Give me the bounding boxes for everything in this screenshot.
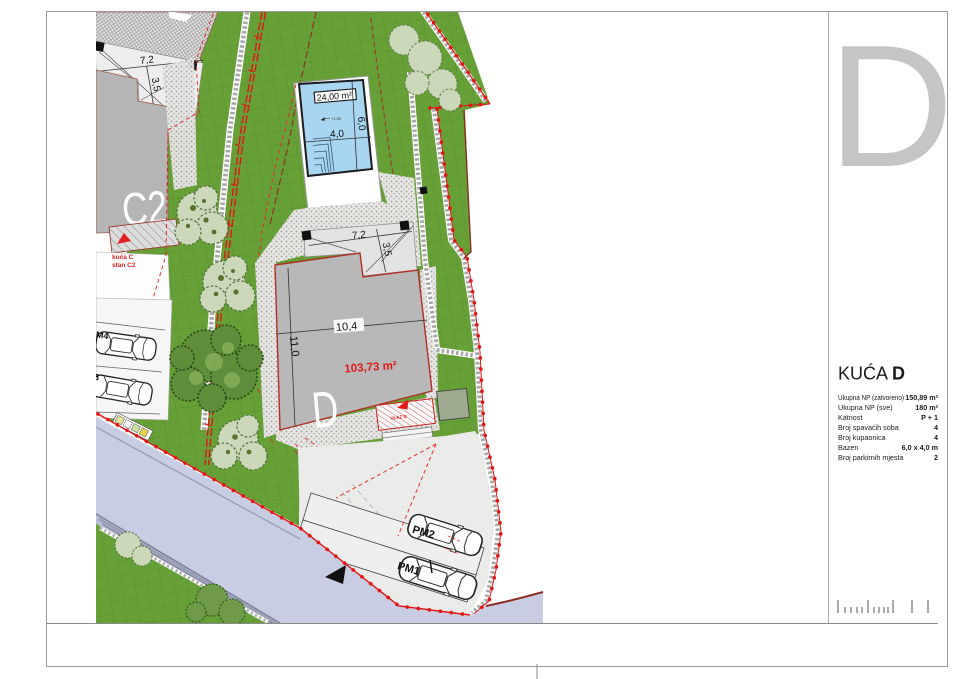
svg-text:11,0: 11,0 bbox=[287, 335, 301, 357]
svg-text:Broj spavaćih soba: Broj spavaćih soba bbox=[838, 423, 899, 432]
svg-text:D: D bbox=[310, 380, 341, 439]
svg-text:Ukupna NP (sve): Ukupna NP (sve) bbox=[838, 403, 893, 412]
svg-text:4,0: 4,0 bbox=[330, 129, 345, 141]
svg-text:7,2: 7,2 bbox=[352, 229, 367, 241]
svg-text:KUĆA D: KUĆA D bbox=[838, 363, 905, 384]
svg-text:D: D bbox=[828, 8, 954, 203]
svg-text:M4: M4 bbox=[95, 329, 109, 341]
svg-text:10,4: 10,4 bbox=[336, 320, 358, 334]
svg-text:6,0 x 4,0 m: 6,0 x 4,0 m bbox=[902, 443, 938, 452]
svg-text:7,2: 7,2 bbox=[140, 54, 155, 66]
svg-text:P + 1: P + 1 bbox=[921, 413, 938, 422]
svg-text:Katnost: Katnost bbox=[838, 413, 862, 422]
svg-text:Ukupna NP (zatvoreno): Ukupna NP (zatvoreno) bbox=[838, 393, 904, 402]
svg-text:Broj kupaonica: Broj kupaonica bbox=[838, 433, 886, 442]
svg-text:+1,50: +1,50 bbox=[331, 116, 342, 121]
svg-text:150,89 m²: 150,89 m² bbox=[905, 393, 938, 402]
svg-text:6,0: 6,0 bbox=[355, 116, 367, 131]
svg-text:180 m²: 180 m² bbox=[915, 403, 938, 412]
svg-text:kuća C: kuća C bbox=[112, 254, 134, 261]
svg-text:Bazen: Bazen bbox=[838, 443, 858, 452]
svg-text:4: 4 bbox=[934, 433, 938, 442]
svg-text:4: 4 bbox=[934, 423, 938, 432]
svg-text:Broj parkirnih mjesta: Broj parkirnih mjesta bbox=[838, 453, 904, 462]
svg-text:2: 2 bbox=[934, 453, 938, 462]
svg-text:stan C2: stan C2 bbox=[112, 262, 136, 269]
